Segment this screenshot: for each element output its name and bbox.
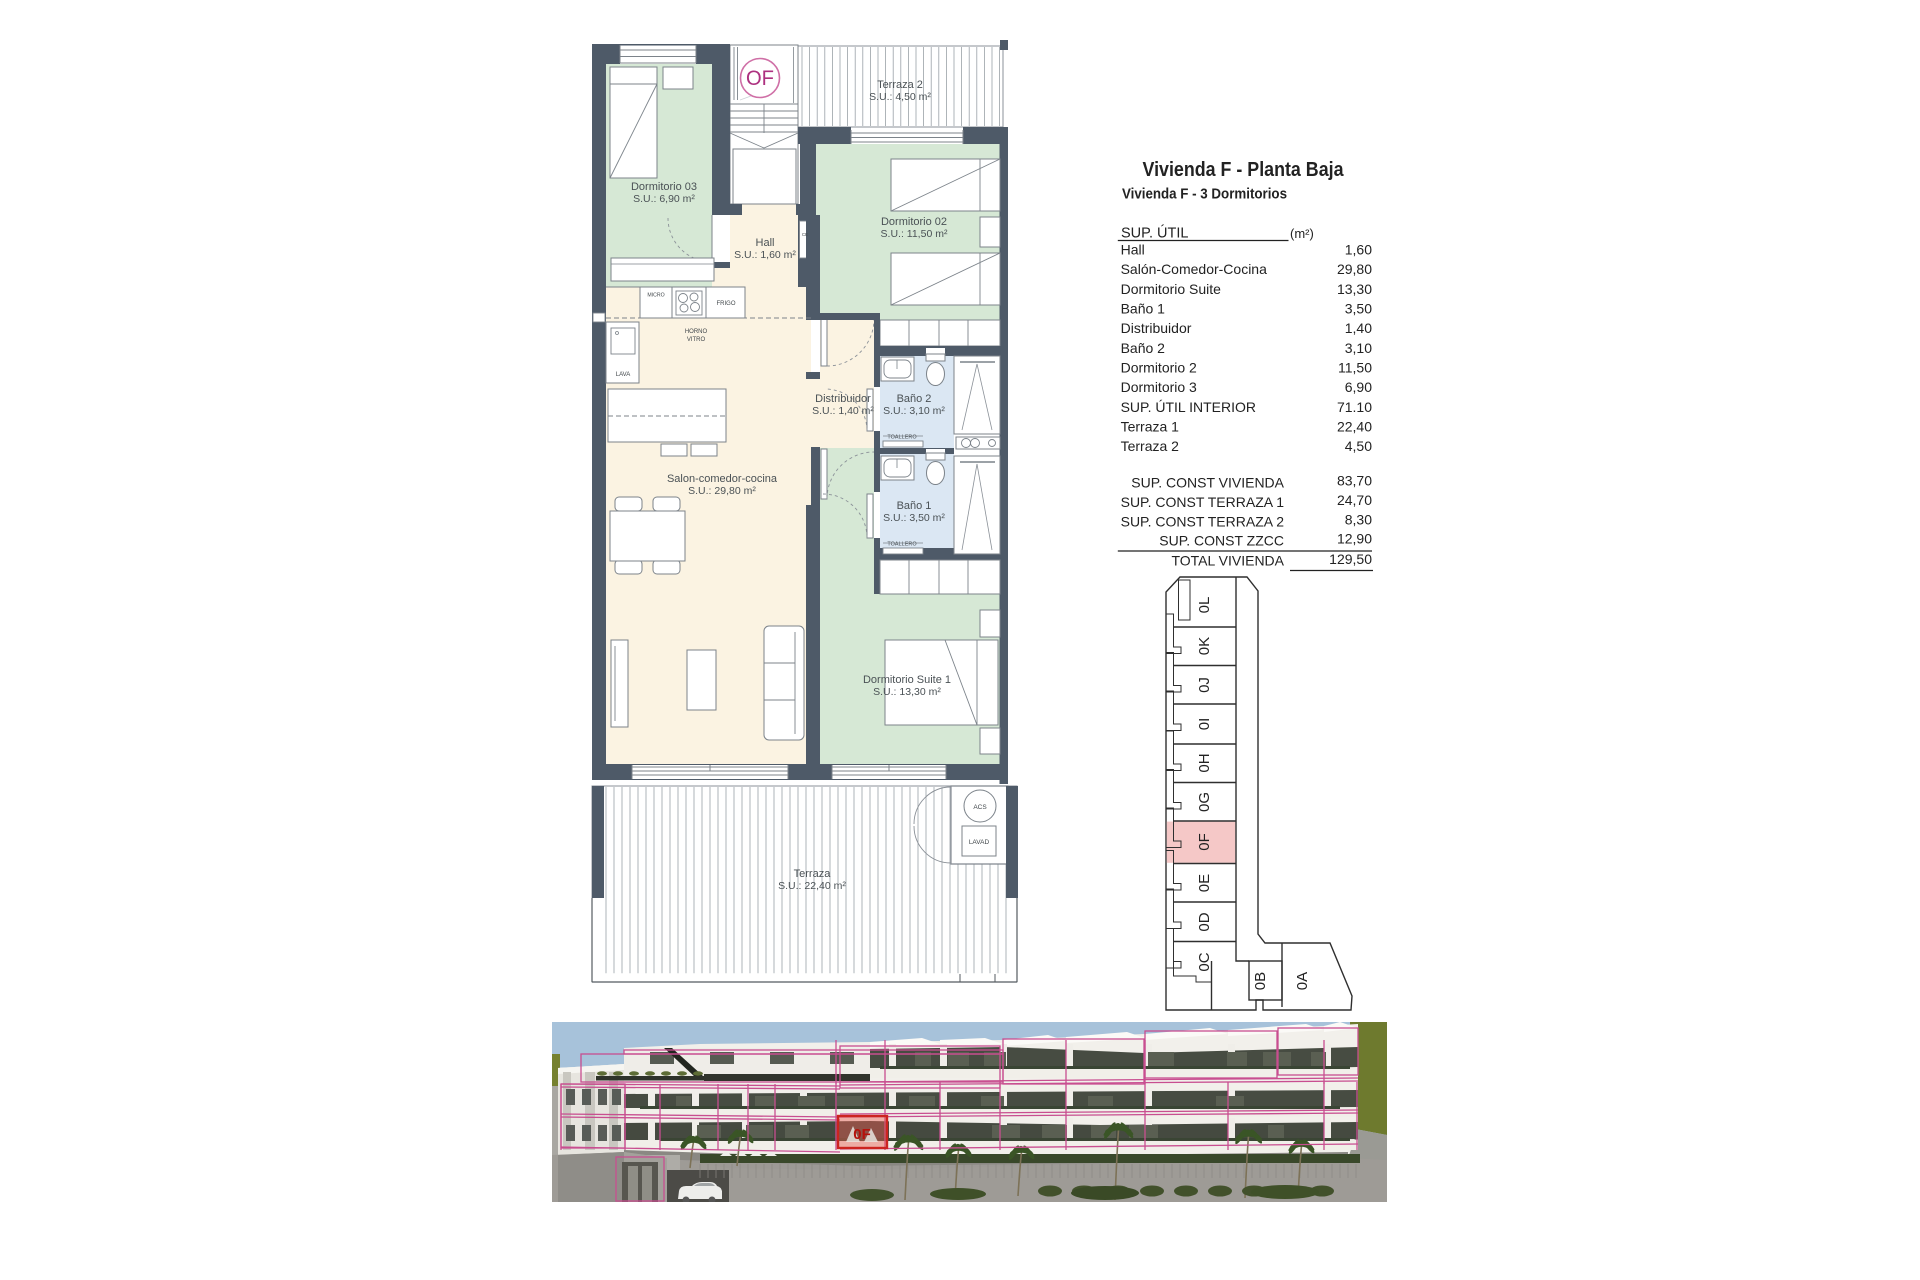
svg-text:24,70: 24,70 bbox=[1337, 492, 1372, 508]
svg-text:Salón-Comedor-Cocina: Salón-Comedor-Cocina bbox=[1121, 261, 1268, 277]
svg-text:(m²): (m²) bbox=[1290, 226, 1314, 241]
svg-text:S.U.: 22,40 m²: S.U.: 22,40 m² bbox=[778, 880, 846, 892]
svg-text:129,50: 129,50 bbox=[1329, 551, 1372, 567]
svg-text:0J: 0J bbox=[1196, 677, 1213, 693]
svg-text:Distribuidor: Distribuidor bbox=[815, 393, 871, 405]
svg-text:HORNO: HORNO bbox=[685, 329, 708, 335]
svg-text:FRIGO: FRIGO bbox=[717, 301, 736, 307]
svg-text:S.U.: 6,90 m²: S.U.: 6,90 m² bbox=[633, 193, 695, 205]
svg-text:0G: 0G bbox=[1196, 792, 1213, 812]
svg-text:0A: 0A bbox=[1294, 972, 1311, 990]
svg-text:Salon-comedor-cocina: Salon-comedor-cocina bbox=[667, 473, 778, 485]
svg-text:MICRO: MICRO bbox=[647, 293, 664, 299]
svg-text:29,80: 29,80 bbox=[1337, 261, 1372, 277]
svg-text:SUP. CONST TERRAZA 2: SUP. CONST TERRAZA 2 bbox=[1121, 513, 1285, 529]
svg-text:0H: 0H bbox=[1196, 753, 1213, 772]
svg-text:Dormitorio Suite: Dormitorio Suite bbox=[1121, 281, 1222, 297]
svg-text:0K: 0K bbox=[1196, 637, 1213, 655]
svg-text:Hall: Hall bbox=[756, 237, 775, 249]
svg-text:LAVA: LAVA bbox=[616, 372, 630, 378]
svg-text:0F: 0F bbox=[853, 1126, 871, 1143]
svg-text:6,90: 6,90 bbox=[1345, 379, 1372, 395]
svg-text:S.U.: 1,40 m²: S.U.: 1,40 m² bbox=[812, 405, 874, 417]
svg-text:0F: 0F bbox=[1196, 833, 1213, 851]
svg-text:Dormitorio Suite 1: Dormitorio Suite 1 bbox=[863, 674, 951, 686]
svg-text:CE: CE bbox=[802, 232, 808, 237]
svg-text:SUP. ÚTIL: SUP. ÚTIL bbox=[1121, 225, 1188, 242]
svg-text:3,50: 3,50 bbox=[1345, 300, 1372, 316]
svg-text:VITRO: VITRO bbox=[687, 337, 706, 343]
svg-text:1,40: 1,40 bbox=[1345, 320, 1372, 336]
svg-text:12,90: 12,90 bbox=[1337, 531, 1372, 547]
svg-text:TOALLERO: TOALLERO bbox=[887, 542, 917, 548]
svg-text:ACS: ACS bbox=[973, 804, 987, 811]
svg-text:S.U.: 29,80 m²: S.U.: 29,80 m² bbox=[688, 485, 756, 497]
svg-text:Dormitorio 3: Dormitorio 3 bbox=[1121, 379, 1197, 395]
svg-text:Dormitorio 03: Dormitorio 03 bbox=[631, 181, 697, 193]
svg-text:83,70: 83,70 bbox=[1337, 473, 1372, 489]
svg-text:S.U.: 13,30 m²: S.U.: 13,30 m² bbox=[873, 686, 941, 698]
svg-text:SUP. ÚTIL INTERIOR: SUP. ÚTIL INTERIOR bbox=[1121, 399, 1256, 415]
svg-text:Baño 1: Baño 1 bbox=[897, 500, 932, 512]
svg-text:OF: OF bbox=[746, 67, 774, 90]
svg-text:Terraza 1: Terraza 1 bbox=[1121, 419, 1180, 435]
svg-text:Baño 2: Baño 2 bbox=[897, 393, 932, 405]
svg-text:TOALLERO: TOALLERO bbox=[887, 435, 917, 441]
svg-text:3,10: 3,10 bbox=[1345, 340, 1372, 356]
svg-text:TOTAL VIVIENDA: TOTAL VIVIENDA bbox=[1171, 553, 1284, 569]
svg-text:0E: 0E bbox=[1196, 874, 1213, 892]
svg-text:0L: 0L bbox=[1196, 597, 1213, 614]
svg-text:Baño 2: Baño 2 bbox=[1121, 340, 1166, 356]
svg-text:SUP. CONST VIVIENDA: SUP. CONST VIVIENDA bbox=[1131, 475, 1284, 491]
svg-text:S.U.: 4,50 m²: S.U.: 4,50 m² bbox=[869, 91, 931, 103]
svg-text:71.10: 71.10 bbox=[1337, 399, 1372, 415]
svg-text:Dormitorio 02: Dormitorio 02 bbox=[881, 216, 947, 228]
svg-text:22,40: 22,40 bbox=[1337, 419, 1372, 435]
svg-text:11,50: 11,50 bbox=[1338, 359, 1372, 375]
svg-text:Distribuidor: Distribuidor bbox=[1121, 320, 1192, 336]
svg-text:0D: 0D bbox=[1196, 912, 1213, 931]
svg-text:S.U.: 3,50 m²: S.U.: 3,50 m² bbox=[883, 512, 945, 524]
svg-text:13,30: 13,30 bbox=[1337, 281, 1372, 297]
svg-text:Terraza 2: Terraza 2 bbox=[1121, 438, 1180, 454]
svg-text:Hall: Hall bbox=[1121, 241, 1145, 257]
svg-text:Vivienda F - Planta Baja: Vivienda F - Planta Baja bbox=[1143, 159, 1345, 181]
svg-text:S.U.: 3,10 m²: S.U.: 3,10 m² bbox=[883, 405, 945, 417]
svg-text:SUP. CONST TERRAZA 1: SUP. CONST TERRAZA 1 bbox=[1121, 494, 1285, 510]
svg-text:LAVAD: LAVAD bbox=[969, 839, 990, 846]
svg-text:SUP. CONST ZZCC: SUP. CONST ZZCC bbox=[1159, 533, 1284, 549]
svg-text:8,30: 8,30 bbox=[1345, 511, 1372, 527]
svg-text:0C: 0C bbox=[1196, 952, 1213, 971]
svg-text:4,50: 4,50 bbox=[1345, 438, 1372, 454]
svg-text:Vivienda F - 3 Dormitorios: Vivienda F - 3 Dormitorios bbox=[1122, 186, 1287, 203]
svg-text:0I: 0I bbox=[1196, 718, 1213, 731]
svg-text:Dormitorio 2: Dormitorio 2 bbox=[1121, 359, 1197, 375]
svg-text:Terraza 2: Terraza 2 bbox=[877, 79, 923, 91]
svg-text:1,60: 1,60 bbox=[1345, 241, 1372, 257]
svg-text:Baño 1: Baño 1 bbox=[1121, 300, 1166, 316]
svg-text:Terraza: Terraza bbox=[794, 868, 832, 880]
svg-text:S.U.: 1,60 m²: S.U.: 1,60 m² bbox=[734, 249, 796, 261]
svg-text:0B: 0B bbox=[1252, 972, 1269, 990]
svg-text:S.U.: 11,50 m²: S.U.: 11,50 m² bbox=[881, 228, 948, 240]
